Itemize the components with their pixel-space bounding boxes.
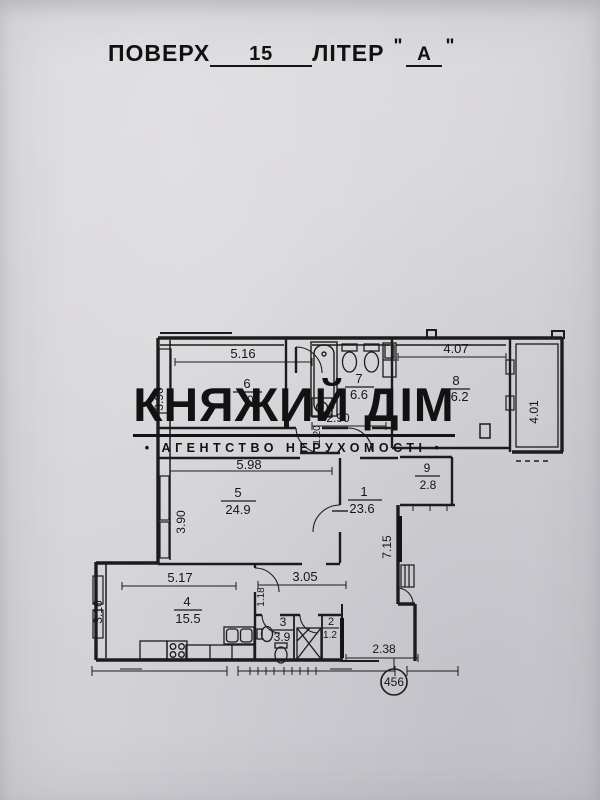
room-7-number: 7 [355, 371, 362, 386]
room-4-area: 15.5 [175, 611, 200, 626]
room-8-number: 8 [452, 373, 459, 388]
shower-cabin [297, 628, 321, 659]
dim-3-05: 3.05 [292, 569, 317, 584]
room-8-area: 16.2 [443, 389, 468, 404]
floor-plan-drawing: 456 6 0. 7 6.6 8 16.2 5 24.9 1 23.6 9 2.… [0, 0, 600, 800]
dim-1-20: 1.20 [312, 425, 323, 445]
dim-3-90-room5: 3.90 [174, 510, 188, 534]
dim-3-16: 3.16 [91, 600, 105, 624]
balcony [506, 338, 558, 461]
room-5-area: 24.9 [225, 502, 250, 517]
room-6-number: 6 [243, 376, 250, 391]
room-4-number: 4 [183, 594, 190, 609]
outer-walls [96, 338, 563, 661]
interior-wall-lines [106, 340, 506, 658]
dim-2-90: 2.90 [326, 411, 350, 425]
dim-5-16: 5.16 [230, 346, 255, 361]
room-5-number: 5 [234, 485, 241, 500]
kitchen-sink [224, 627, 254, 644]
toilet-2 [364, 344, 379, 372]
bath-cabinet [383, 343, 396, 377]
dim-2-38: 2.38 [372, 642, 396, 656]
room-9-area: 2.8 [420, 478, 437, 492]
dim-4-07: 4.07 [443, 341, 468, 356]
room-7-area: 6.6 [350, 387, 368, 402]
dim-3-90-top: 3.90 [152, 387, 166, 411]
washbasin [257, 627, 273, 642]
room-1-area: 23.6 [349, 501, 374, 516]
dim-4-01: 4.01 [527, 400, 541, 424]
room-2-number: 2 [328, 616, 334, 628]
dim-1-18: 1.18 [256, 587, 267, 607]
bathtub [311, 342, 337, 416]
scanned-floorplan-page: ПОВЕРХ 15 ЛІТЕР " А " [0, 0, 600, 800]
room-3-area: 3.9 [274, 630, 291, 644]
unit-number-label: 456 [384, 675, 404, 689]
room-1-number: 1 [360, 484, 367, 499]
dim-7-15: 7.15 [380, 535, 394, 559]
stove [167, 641, 187, 659]
unit-number-circle: 456 [381, 669, 407, 695]
room-2-area: 1.2 [323, 630, 337, 641]
room-9-number: 9 [424, 461, 431, 475]
room-3-number: 3 [280, 615, 287, 629]
room-labels: 6 0. 7 6.6 8 16.2 5 24.9 1 23.6 9 2.8 4 … [174, 371, 470, 644]
dim-5-98: 5.98 [236, 457, 261, 472]
dim-5-17: 5.17 [167, 570, 192, 585]
toilet-1 [342, 344, 357, 372]
room-6-area: 0. [247, 393, 257, 407]
